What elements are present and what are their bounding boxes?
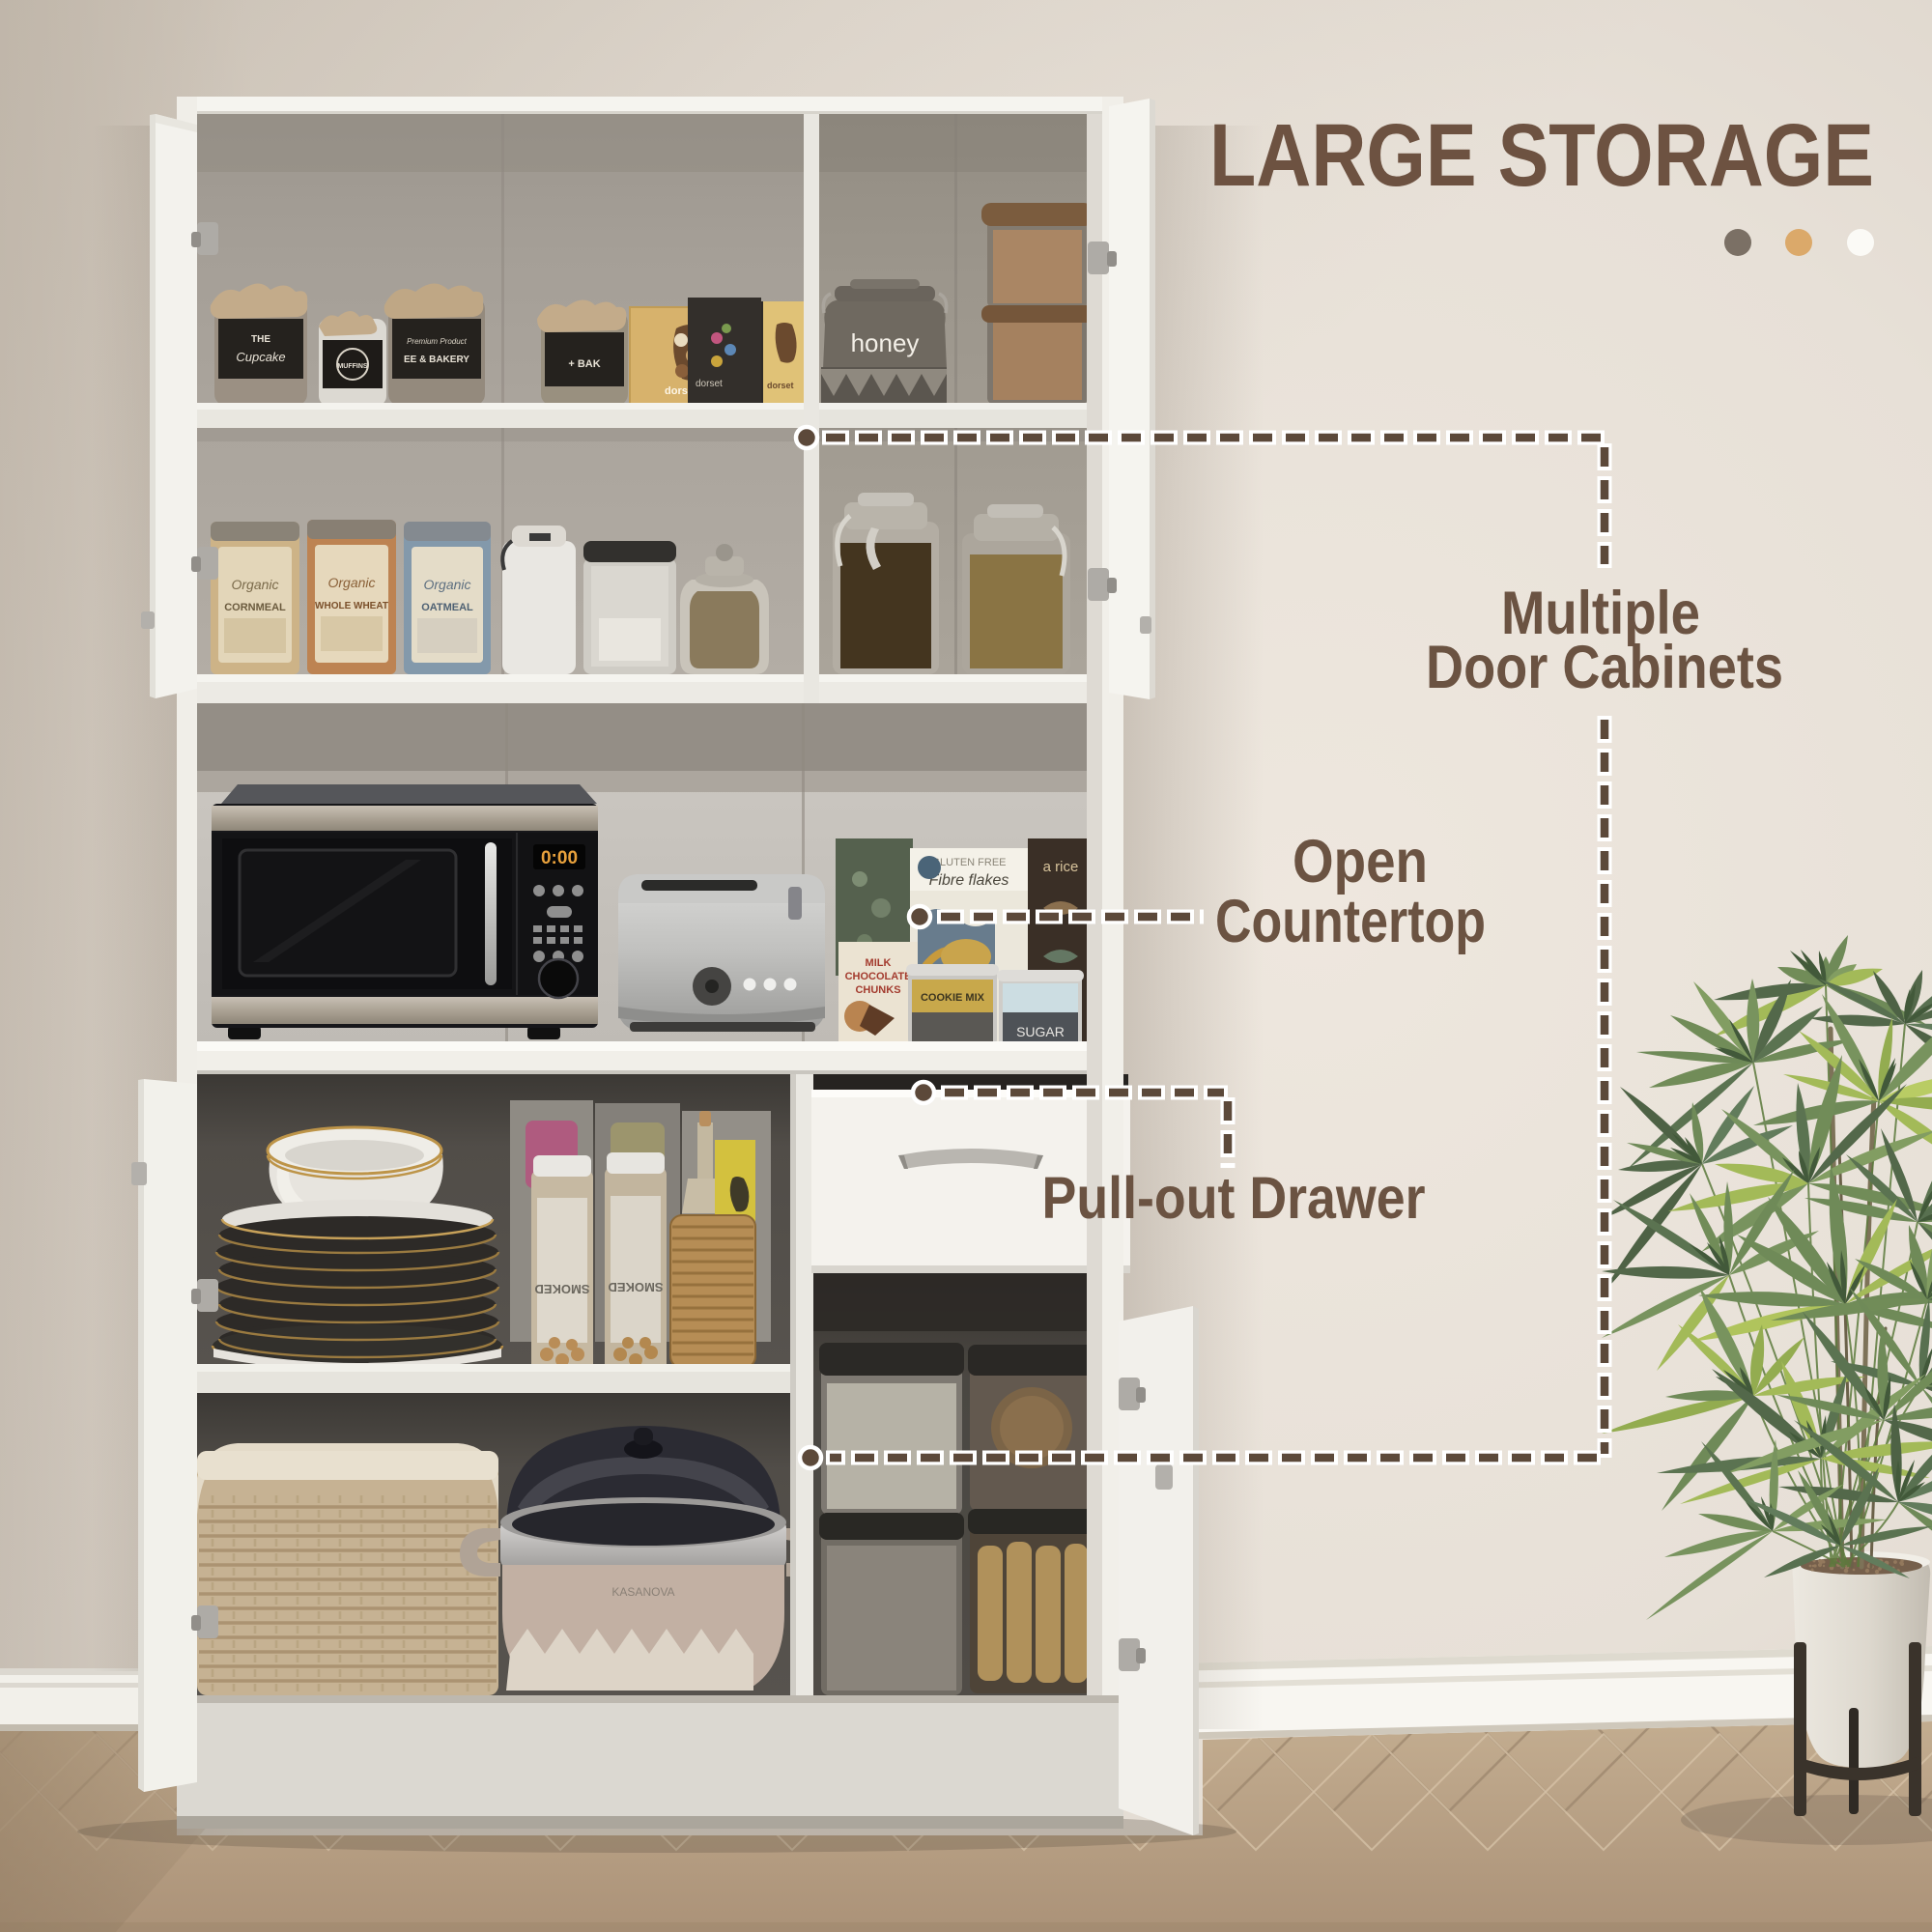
svg-text:0:00: 0:00: [541, 848, 578, 868]
svg-text:OATMEAL: OATMEAL: [421, 602, 473, 613]
svg-text:SUGAR: SUGAR: [1016, 1024, 1065, 1039]
svg-text:Organic: Organic: [231, 577, 278, 592]
svg-text:Premium Product: Premium Product: [407, 337, 468, 346]
svg-text:dorset: dorset: [767, 381, 794, 390]
svg-text:Fibre flakes: Fibre flakes: [929, 872, 1009, 889]
svg-text:CHOCOLATE: CHOCOLATE: [845, 971, 912, 982]
svg-text:CORNMEAL: CORNMEAL: [224, 602, 286, 613]
svg-text:SMOKED: SMOKED: [534, 1282, 589, 1296]
svg-text:a rice: a rice: [1043, 859, 1079, 875]
svg-text:Open: Open: [1293, 828, 1428, 895]
svg-text:SMOKED: SMOKED: [608, 1280, 663, 1294]
svg-text:KASANOVA: KASANOVA: [611, 1585, 674, 1599]
svg-text:honey: honey: [851, 328, 920, 357]
svg-text:Door Cabinets: Door Cabinets: [1426, 634, 1783, 701]
svg-text:+ BAK: + BAK: [568, 358, 600, 370]
svg-text:CHUNKS: CHUNKS: [855, 984, 900, 996]
svg-text:THE: THE: [251, 334, 270, 345]
svg-text:LARGE STORAGE: LARGE STORAGE: [1209, 106, 1874, 205]
svg-text:GLUTEN FREE: GLUTEN FREE: [931, 857, 1006, 868]
svg-text:MILK: MILK: [866, 957, 892, 969]
svg-text:Organic: Organic: [423, 577, 470, 592]
svg-text:Countertop: Countertop: [1215, 888, 1486, 955]
svg-text:Organic: Organic: [327, 575, 375, 590]
svg-text:MUFFINS: MUFFINS: [337, 363, 367, 370]
svg-text:WHOLE WHEAT: WHOLE WHEAT: [315, 601, 388, 611]
svg-text:dorset: dorset: [696, 379, 723, 389]
svg-text:COOKIE MIX: COOKIE MIX: [921, 992, 985, 1004]
svg-text:Pull-out Drawer: Pull-out Drawer: [1042, 1165, 1426, 1231]
svg-text:Cupcake: Cupcake: [236, 350, 285, 364]
svg-text:EE & BAKERY: EE & BAKERY: [404, 355, 469, 365]
